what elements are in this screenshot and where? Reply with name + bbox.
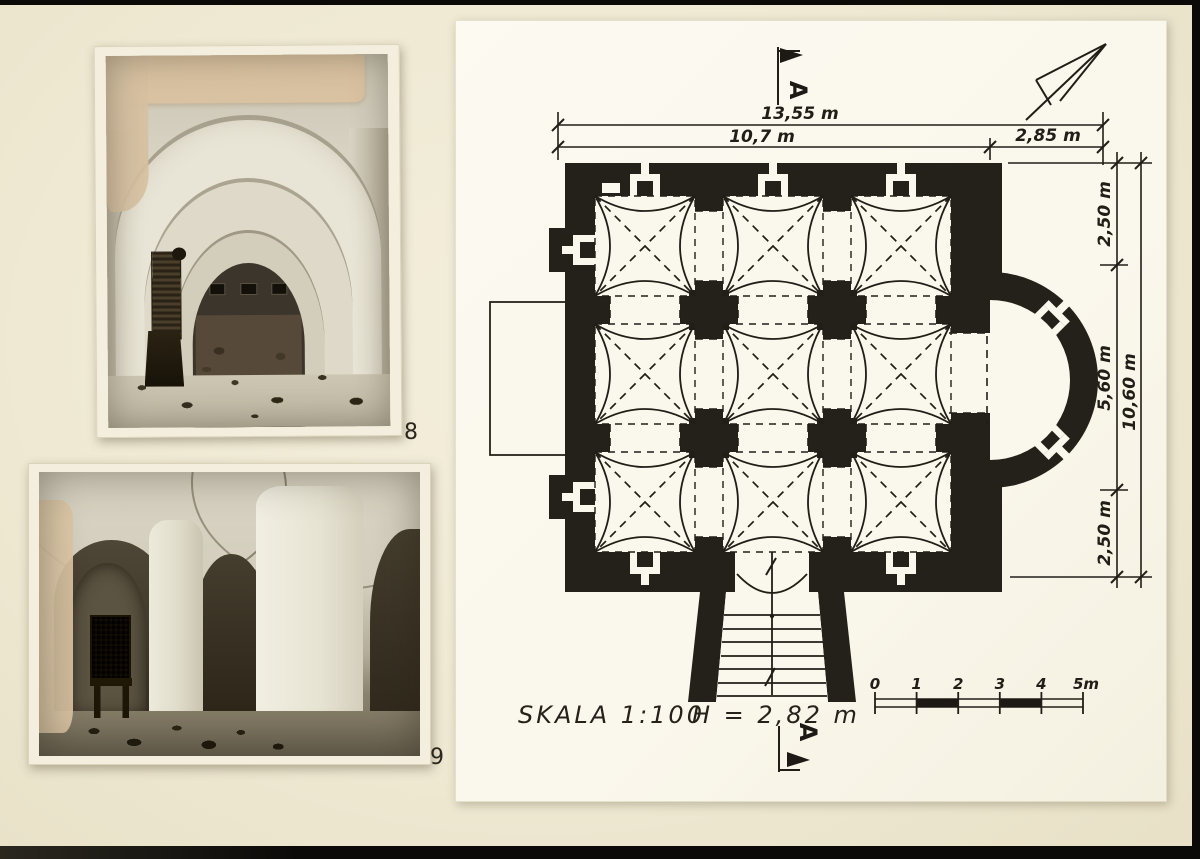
dim-label-right-total: 10,60 m bbox=[1120, 353, 1140, 430]
dim-label-nave-width: 10,7 m bbox=[729, 127, 795, 147]
scale-bar-label-2: 2 bbox=[953, 675, 963, 693]
scan-edge-bottom bbox=[0, 846, 1200, 859]
photo-9-vignette bbox=[39, 472, 420, 756]
dim-label-apse-depth: 2,85 m bbox=[1015, 126, 1081, 146]
dim-label-right-mid: 5,60 m bbox=[1095, 345, 1115, 411]
scanned-document-page: 8 9 bbox=[0, 0, 1200, 859]
scale-bar-label-1: 1 bbox=[911, 675, 921, 693]
scan-edge-right bbox=[1192, 0, 1200, 859]
scale-bar-label-4: 4 bbox=[1035, 675, 1046, 693]
photo-9-mount bbox=[28, 463, 431, 765]
section-marker-top: A bbox=[778, 47, 812, 105]
photo-9-number: 9 bbox=[430, 745, 444, 770]
photo-8-number: 8 bbox=[404, 420, 418, 445]
section-marker-bottom: A bbox=[779, 723, 822, 772]
scale-bar-label-5m: 5m bbox=[1073, 675, 1099, 693]
apse-passage bbox=[949, 333, 992, 413]
dim-label-right-bottom: 2,50 m bbox=[1095, 500, 1115, 566]
photo-8-mount bbox=[94, 44, 403, 438]
photo-9 bbox=[39, 472, 420, 756]
annex-outline bbox=[490, 302, 567, 455]
scale-bar: 0 1 2 3 4 5m bbox=[870, 675, 1099, 714]
photo-8 bbox=[106, 54, 391, 428]
dim-label-total-width: 13,55 m bbox=[761, 104, 838, 124]
scale-label: SKALA 1:100 bbox=[518, 701, 705, 729]
scale-bar-label-0: 0 bbox=[870, 675, 880, 693]
scan-edge-top bbox=[0, 0, 1200, 5]
section-letter-top: A bbox=[784, 81, 812, 100]
photo-8-vignette bbox=[106, 54, 391, 428]
dim-label-right-top: 2,50 m bbox=[1095, 181, 1115, 247]
floor-plan-drawing: 13,55 m 10,7 m 2,85 m 2,50 m 5,60 m 2,50… bbox=[455, 20, 1167, 802]
scale-bar-label-3: 3 bbox=[995, 675, 1005, 693]
height-label: H = 2,82 m bbox=[692, 701, 860, 729]
north-arrow-icon bbox=[1026, 44, 1106, 120]
